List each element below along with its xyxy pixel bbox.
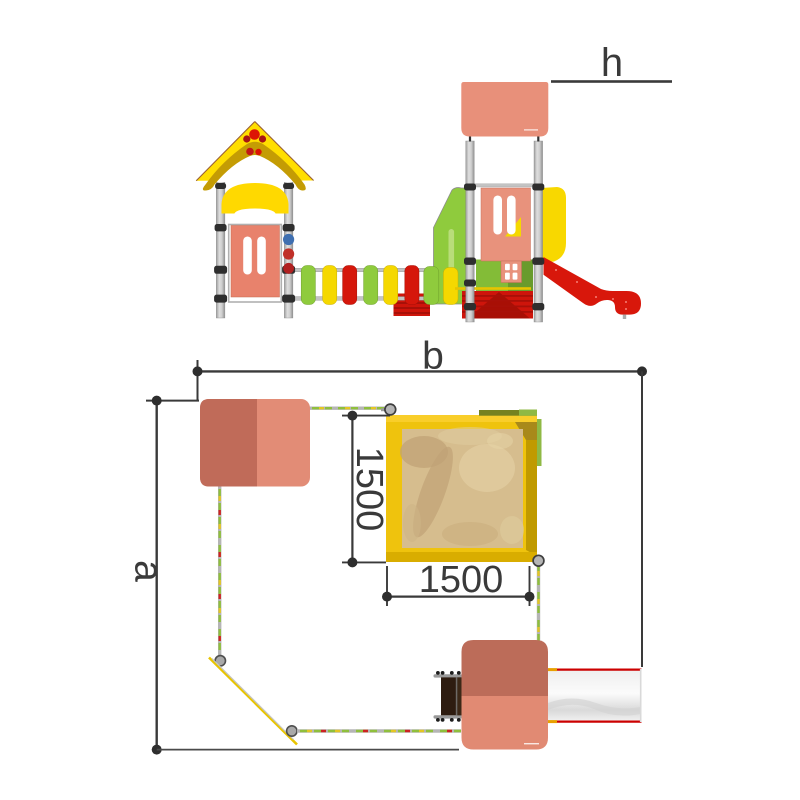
svg-text:a: a bbox=[127, 560, 170, 582]
svg-text:h: h bbox=[601, 41, 623, 85]
svg-text:1500: 1500 bbox=[348, 447, 390, 532]
svg-text:b: b bbox=[422, 335, 444, 378]
svg-text:1500: 1500 bbox=[419, 559, 504, 601]
